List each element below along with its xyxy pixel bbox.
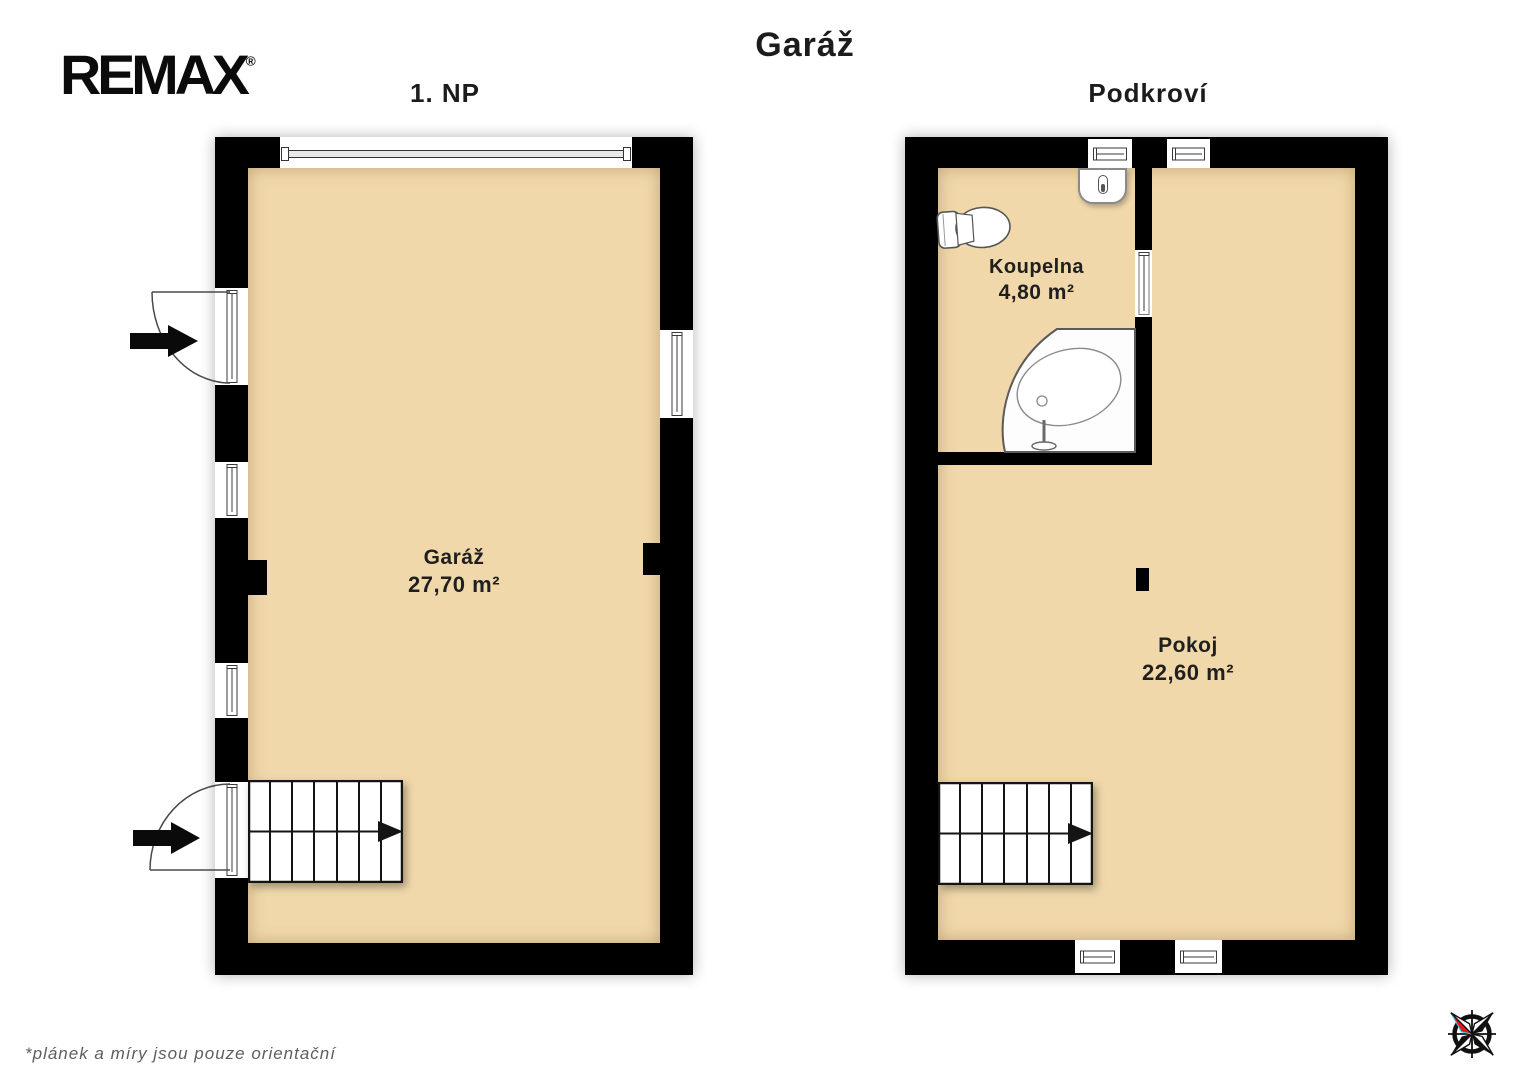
room-name: Garáž bbox=[248, 545, 660, 571]
staircase bbox=[938, 782, 1093, 885]
room-label-pokoj: Pokoj 22,60 m² bbox=[1038, 633, 1338, 687]
room-name: Koupelna bbox=[938, 255, 1135, 280]
window-icon bbox=[1093, 147, 1127, 160]
garage-door-icon bbox=[282, 150, 630, 158]
window-icon bbox=[226, 464, 237, 516]
floorplan-podkrovi: Koupelna 4,80 m² Pokoj 22,60 m² bbox=[905, 137, 1388, 975]
window-icon bbox=[226, 665, 237, 716]
room-label-garaz: Garáž 27,70 m² bbox=[248, 545, 660, 599]
compass-icon bbox=[1437, 999, 1507, 1069]
room-name: Pokoj bbox=[1038, 633, 1338, 659]
registered-mark: ® bbox=[246, 53, 256, 68]
bathroom-wall bbox=[1135, 317, 1152, 452]
plan-title-podkrovi: Podkroví bbox=[905, 78, 1391, 109]
room-pillar bbox=[1136, 568, 1149, 591]
disclaimer-text: *plánek a míry jsou pouze orientační bbox=[25, 1044, 336, 1064]
bathtub-icon bbox=[995, 327, 1137, 454]
entrance-arrow-icon bbox=[133, 822, 200, 854]
door-leaf-icon bbox=[226, 784, 237, 876]
window bbox=[660, 330, 693, 418]
entrance-arrow-icon bbox=[130, 325, 198, 357]
door-leaf-icon bbox=[226, 290, 237, 383]
roof-window bbox=[1167, 139, 1210, 168]
roof-window bbox=[1175, 940, 1222, 973]
bathroom-door bbox=[1135, 250, 1152, 317]
window-icon bbox=[1172, 147, 1205, 160]
thermometer-icon bbox=[1098, 175, 1108, 194]
entry-door-bottom bbox=[215, 782, 248, 878]
water-heater-icon bbox=[1078, 168, 1127, 204]
room-area: 22,60 m² bbox=[1038, 659, 1338, 687]
roof-window bbox=[1075, 940, 1120, 973]
page-title: Garáž bbox=[755, 26, 855, 65]
room-area: 27,70 m² bbox=[248, 571, 660, 599]
window-icon bbox=[671, 332, 682, 416]
floorplan-page: REMAX® Garáž 1. NP Podkroví bbox=[0, 0, 1527, 1080]
floorplan-1np: Garáž 27,70 m² bbox=[215, 137, 693, 975]
bathroom-wall bbox=[1135, 168, 1152, 250]
window bbox=[215, 462, 248, 518]
roof-window bbox=[1088, 139, 1132, 168]
door-leaf-icon bbox=[1138, 252, 1149, 315]
entry-door-top bbox=[215, 288, 248, 385]
window bbox=[215, 663, 248, 718]
garage-door-cap bbox=[281, 147, 289, 161]
window-icon bbox=[1080, 950, 1115, 963]
plan-title-1np: 1. NP bbox=[215, 78, 675, 109]
window-icon bbox=[1180, 950, 1217, 963]
room-label-koupelna: Koupelna 4,80 m² bbox=[938, 255, 1135, 306]
garage-door bbox=[280, 137, 632, 168]
staircase-icon bbox=[248, 780, 403, 883]
room-area: 4,80 m² bbox=[938, 280, 1135, 306]
toilet-icon bbox=[935, 202, 1015, 254]
staircase-icon bbox=[938, 782, 1093, 885]
garage-door-cap bbox=[623, 147, 631, 161]
staircase bbox=[248, 780, 403, 883]
